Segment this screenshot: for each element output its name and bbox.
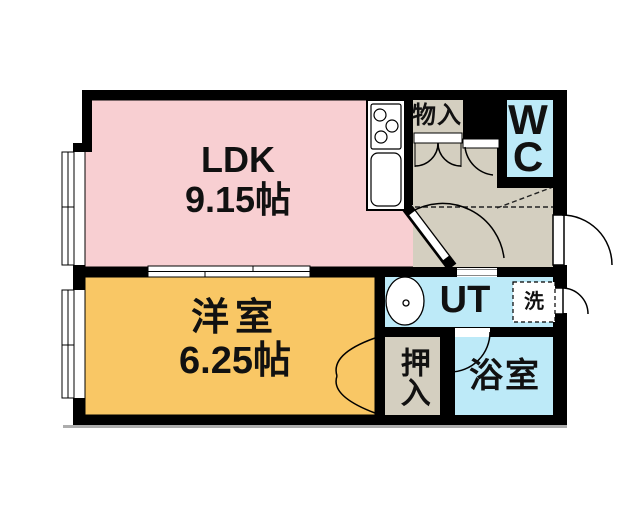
entrance-door-leaf bbox=[553, 215, 564, 265]
floor-plan: LDK 9.15帖 洋室 6.25帖 W C UT 物入 押入 浴室 洗 bbox=[0, 0, 640, 512]
washing-machine-icon bbox=[513, 282, 555, 322]
storage-threshold bbox=[414, 133, 462, 143]
ut-opening-icon bbox=[457, 268, 497, 277]
western-window-icon bbox=[62, 290, 74, 398]
floor-plan-drawing bbox=[0, 0, 640, 512]
wc-door-leaf bbox=[463, 139, 499, 148]
wc-area bbox=[503, 100, 553, 177]
wall-closet-bath bbox=[440, 337, 455, 415]
kitchen-unit-icon bbox=[367, 100, 405, 210]
entrance-door-arc-icon bbox=[562, 215, 612, 265]
wall-left-upper bbox=[82, 90, 92, 152]
wall-kitchen bbox=[405, 90, 413, 205]
closet-area bbox=[382, 337, 440, 415]
wall-bottom bbox=[73, 415, 567, 425]
ground-shadow bbox=[63, 425, 567, 428]
western-room-area bbox=[85, 277, 375, 415]
windows bbox=[62, 152, 74, 398]
ldk-window-icon bbox=[62, 152, 74, 265]
sliding-door-icon bbox=[148, 266, 310, 277]
washbasin-icon bbox=[386, 277, 424, 325]
bath-door-gap bbox=[455, 328, 490, 337]
wall-block bbox=[463, 90, 507, 145]
wall-ut-left bbox=[375, 267, 385, 415]
wall-below-wc bbox=[497, 177, 567, 188]
kitchen-sink-icon bbox=[371, 153, 401, 206]
bath-area bbox=[455, 337, 555, 415]
service-door-arc-icon bbox=[562, 288, 588, 314]
wall-right bbox=[553, 90, 567, 215]
